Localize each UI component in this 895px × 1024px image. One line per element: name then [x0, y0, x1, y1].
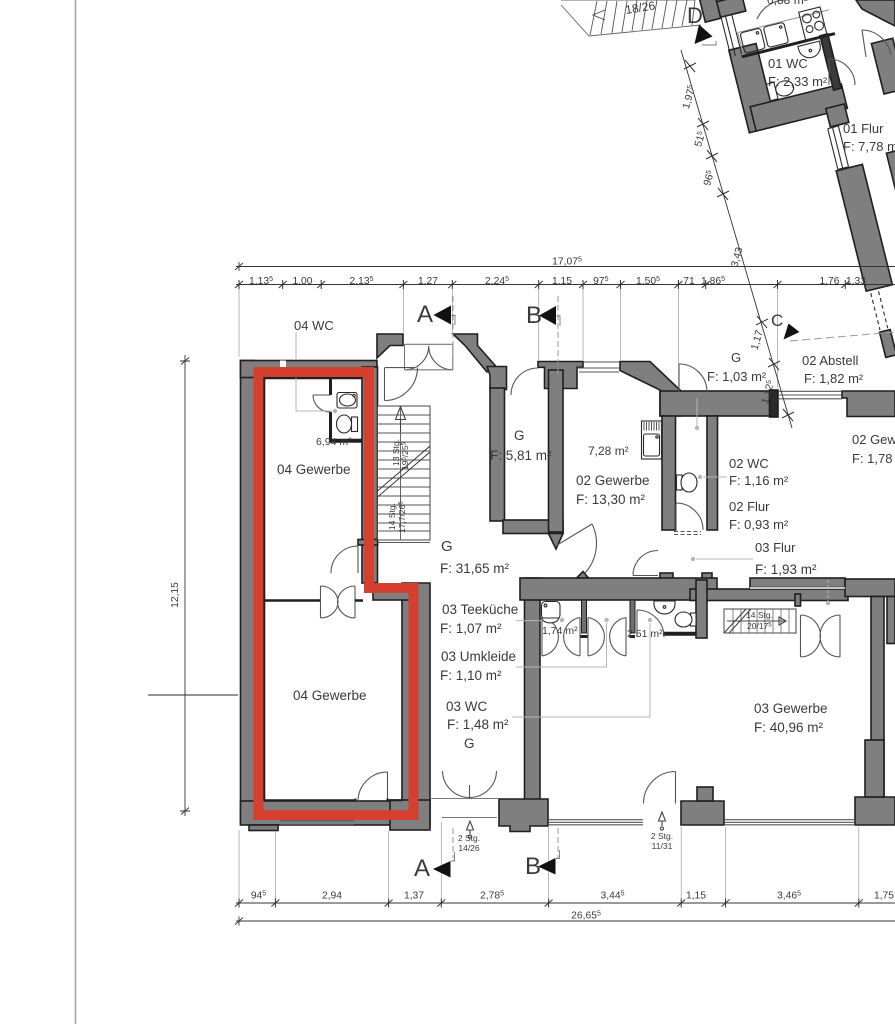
svg-text:14 Stg.: 14 Stg. [746, 610, 773, 620]
svg-text:F: 1,78 m²: F: 1,78 m² [852, 451, 895, 466]
svg-text:01 WC: 01 WC [768, 56, 808, 71]
svg-text:14 Stg.: 14 Stg. [387, 503, 397, 530]
svg-text:B: B [525, 853, 541, 880]
svg-text:26,655: 26,655 [571, 911, 601, 922]
svg-text:195/255: 195/255 [400, 441, 410, 470]
svg-text:03 Flur: 03 Flur [755, 540, 796, 555]
svg-text:04 Gewerbe: 04 Gewerbe [293, 688, 367, 703]
svg-text:2,94: 2,94 [322, 891, 342, 902]
svg-text:A: A [417, 301, 433, 328]
svg-text:03 Gewerbe: 03 Gewerbe [754, 701, 828, 716]
svg-text:F: 31,65 m²: F: 31,65 m² [440, 561, 510, 576]
svg-text:1,37: 1,37 [404, 891, 424, 902]
svg-text:G: G [514, 428, 525, 443]
svg-text:F: 1,03 m²: F: 1,03 m² [707, 369, 767, 384]
svg-text:03 Teeküche: 03 Teeküche [442, 602, 518, 617]
svg-text:02 Gewerbe: 02 Gewerbe [576, 473, 650, 488]
svg-text:F: 5,81 m²: F: 5,81 m² [490, 448, 552, 463]
svg-text:C: C [771, 311, 783, 330]
svg-text:F: 40,96 m²: F: 40,96 m² [754, 720, 824, 735]
svg-text:02 Gewerbe: 02 Gewerbe [852, 432, 895, 447]
svg-text:2,51 m²: 2,51 m² [627, 628, 663, 640]
svg-text:17,7/265: 17,7/265 [397, 501, 407, 533]
svg-text:F: 1,82 m²: F: 1,82 m² [804, 371, 864, 386]
svg-text:F: 1,93 m²: F: 1,93 m² [755, 562, 817, 577]
svg-text:1,75: 1,75 [874, 891, 894, 902]
svg-text:1,15: 1,15 [686, 891, 706, 902]
svg-text:01 Flur: 01 Flur [843, 121, 884, 136]
svg-text:03 Umkleide: 03 Umkleide [441, 649, 516, 664]
svg-text:F: 1,07 m²: F: 1,07 m² [440, 621, 502, 636]
svg-text:B: B [526, 302, 542, 329]
svg-text:04 Gewerbe: 04 Gewerbe [277, 462, 351, 477]
svg-text:04 WC: 04 WC [294, 318, 334, 333]
svg-text:1,00: 1,00 [292, 276, 312, 287]
svg-text:1,27: 1,27 [418, 276, 438, 287]
svg-text:71: 71 [683, 276, 695, 287]
svg-text:02 Abstell: 02 Abstell [802, 353, 858, 368]
svg-text:1,74 m²: 1,74 m² [542, 625, 578, 637]
svg-text:D: D [687, 3, 703, 28]
svg-text:02 WC: 02 WC [729, 456, 769, 471]
svg-text:1,15: 1,15 [552, 276, 572, 287]
svg-text:0,88 m²: 0,88 m² [767, 0, 808, 7]
svg-text:F: 7,78 m²: F: 7,78 m² [843, 139, 895, 154]
svg-text:14/26: 14/26 [458, 843, 480, 853]
svg-text:2 Stg.: 2 Stg. [458, 833, 480, 843]
svg-text:F: 1,48 m²: F: 1,48 m² [447, 717, 509, 732]
svg-text:02 Flur: 02 Flur [729, 499, 770, 514]
svg-text:17,075: 17,075 [552, 257, 582, 268]
svg-text:7,28 m²: 7,28 m² [588, 444, 629, 458]
svg-text:12,15: 12,15 [170, 582, 181, 608]
svg-text:6,94 m²: 6,94 m² [316, 436, 352, 448]
svg-text:1,76: 1,76 [819, 276, 839, 287]
svg-text:03 WC: 03 WC [446, 699, 488, 714]
svg-text:1,33: 1,33 [846, 276, 866, 287]
svg-text:F: 2,33 m²: F: 2,33 m² [768, 74, 828, 89]
svg-text:F: 13,30 m²: F: 13,30 m² [576, 492, 646, 507]
svg-text:A: A [414, 855, 430, 882]
svg-text:G: G [464, 736, 475, 751]
svg-text:11/31: 11/31 [652, 841, 673, 851]
svg-text:F: 0,93 m²: F: 0,93 m² [729, 517, 789, 532]
svg-text:2 Stg.: 2 Stg. [651, 831, 673, 841]
svg-text:G: G [441, 538, 453, 555]
svg-text:G: G [731, 350, 741, 365]
svg-text:F: 1,16 m²: F: 1,16 m² [729, 473, 789, 488]
svg-text:F: 1,10 m²: F: 1,10 m² [440, 668, 502, 683]
